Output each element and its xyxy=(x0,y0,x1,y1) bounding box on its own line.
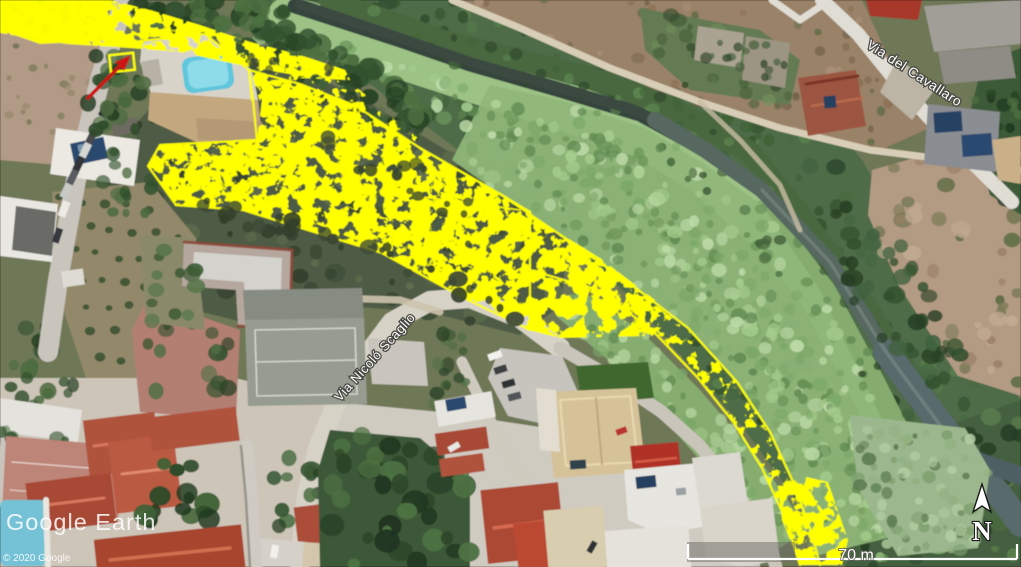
svg-text:Google Earth: Google Earth xyxy=(6,509,156,535)
svg-text:70 m: 70 m xyxy=(838,547,874,564)
svg-text:N: N xyxy=(972,516,992,546)
svg-text:© 2020 Google: © 2020 Google xyxy=(3,553,71,564)
